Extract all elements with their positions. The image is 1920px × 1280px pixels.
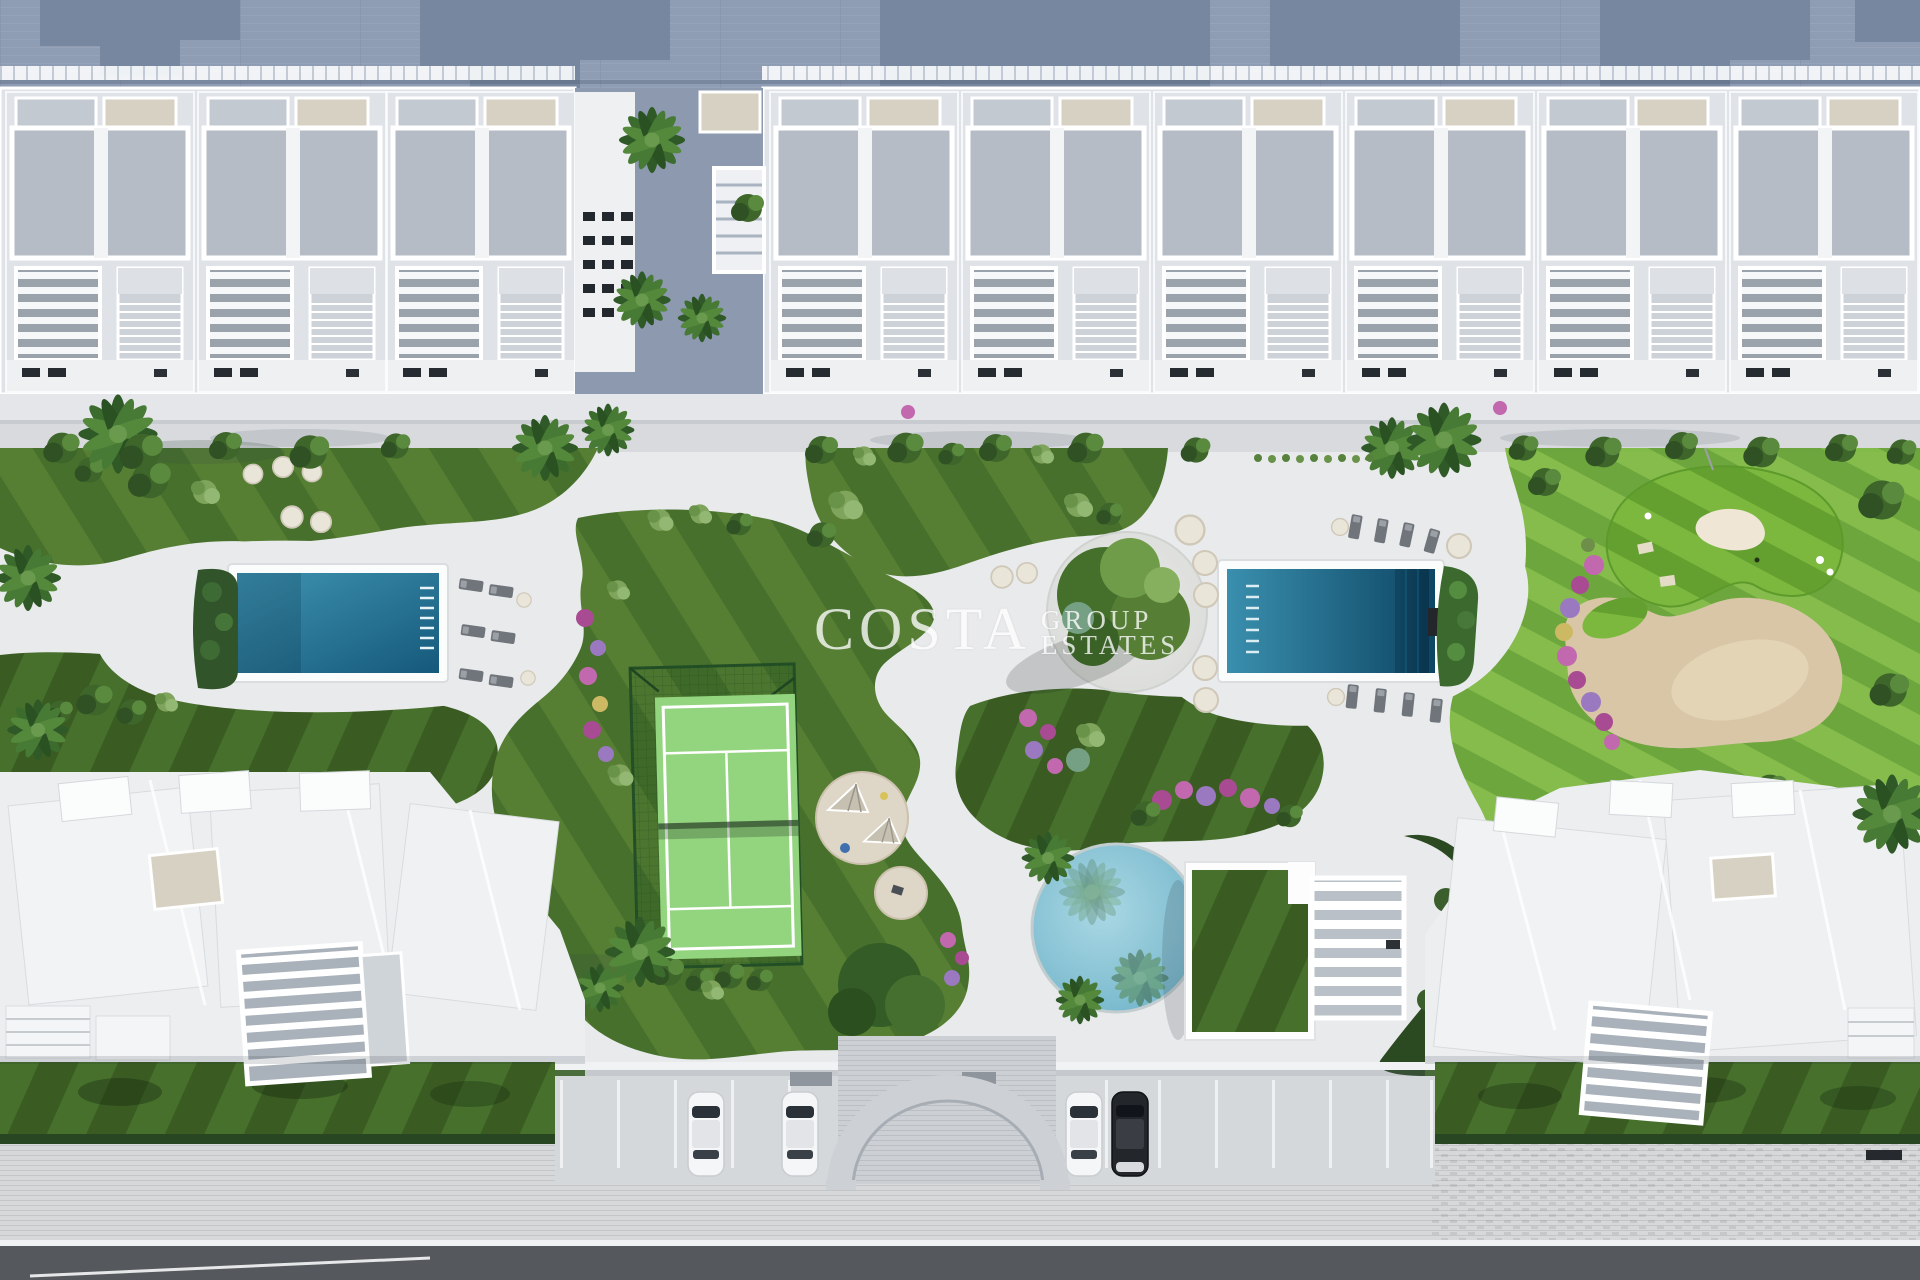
- roof-railing: [0, 66, 1920, 84]
- site-plan-rendering: COSTA GROUP ESTATES: [0, 0, 1920, 1280]
- townhouse-row-north: [0, 88, 1920, 394]
- parked-car: [688, 1092, 724, 1176]
- courtyard-gap: [575, 88, 764, 394]
- aerial-render: [0, 0, 1920, 1280]
- padel-court: [630, 664, 802, 968]
- apartment-building-southwest: [0, 771, 585, 1084]
- lawn-roof-cabana: [1162, 862, 1315, 1040]
- pergola: [1312, 878, 1404, 1018]
- left-pool: [193, 564, 448, 689]
- pool-ladder: [420, 588, 434, 648]
- right-pool: [1218, 560, 1478, 686]
- parked-car: [1066, 1092, 1102, 1176]
- parked-car: [782, 1092, 818, 1176]
- pool-ladder: [1246, 586, 1259, 652]
- parked-car-dark: [1112, 1092, 1148, 1176]
- courtyard-building-wall: [575, 92, 635, 372]
- promenade: [0, 394, 1920, 452]
